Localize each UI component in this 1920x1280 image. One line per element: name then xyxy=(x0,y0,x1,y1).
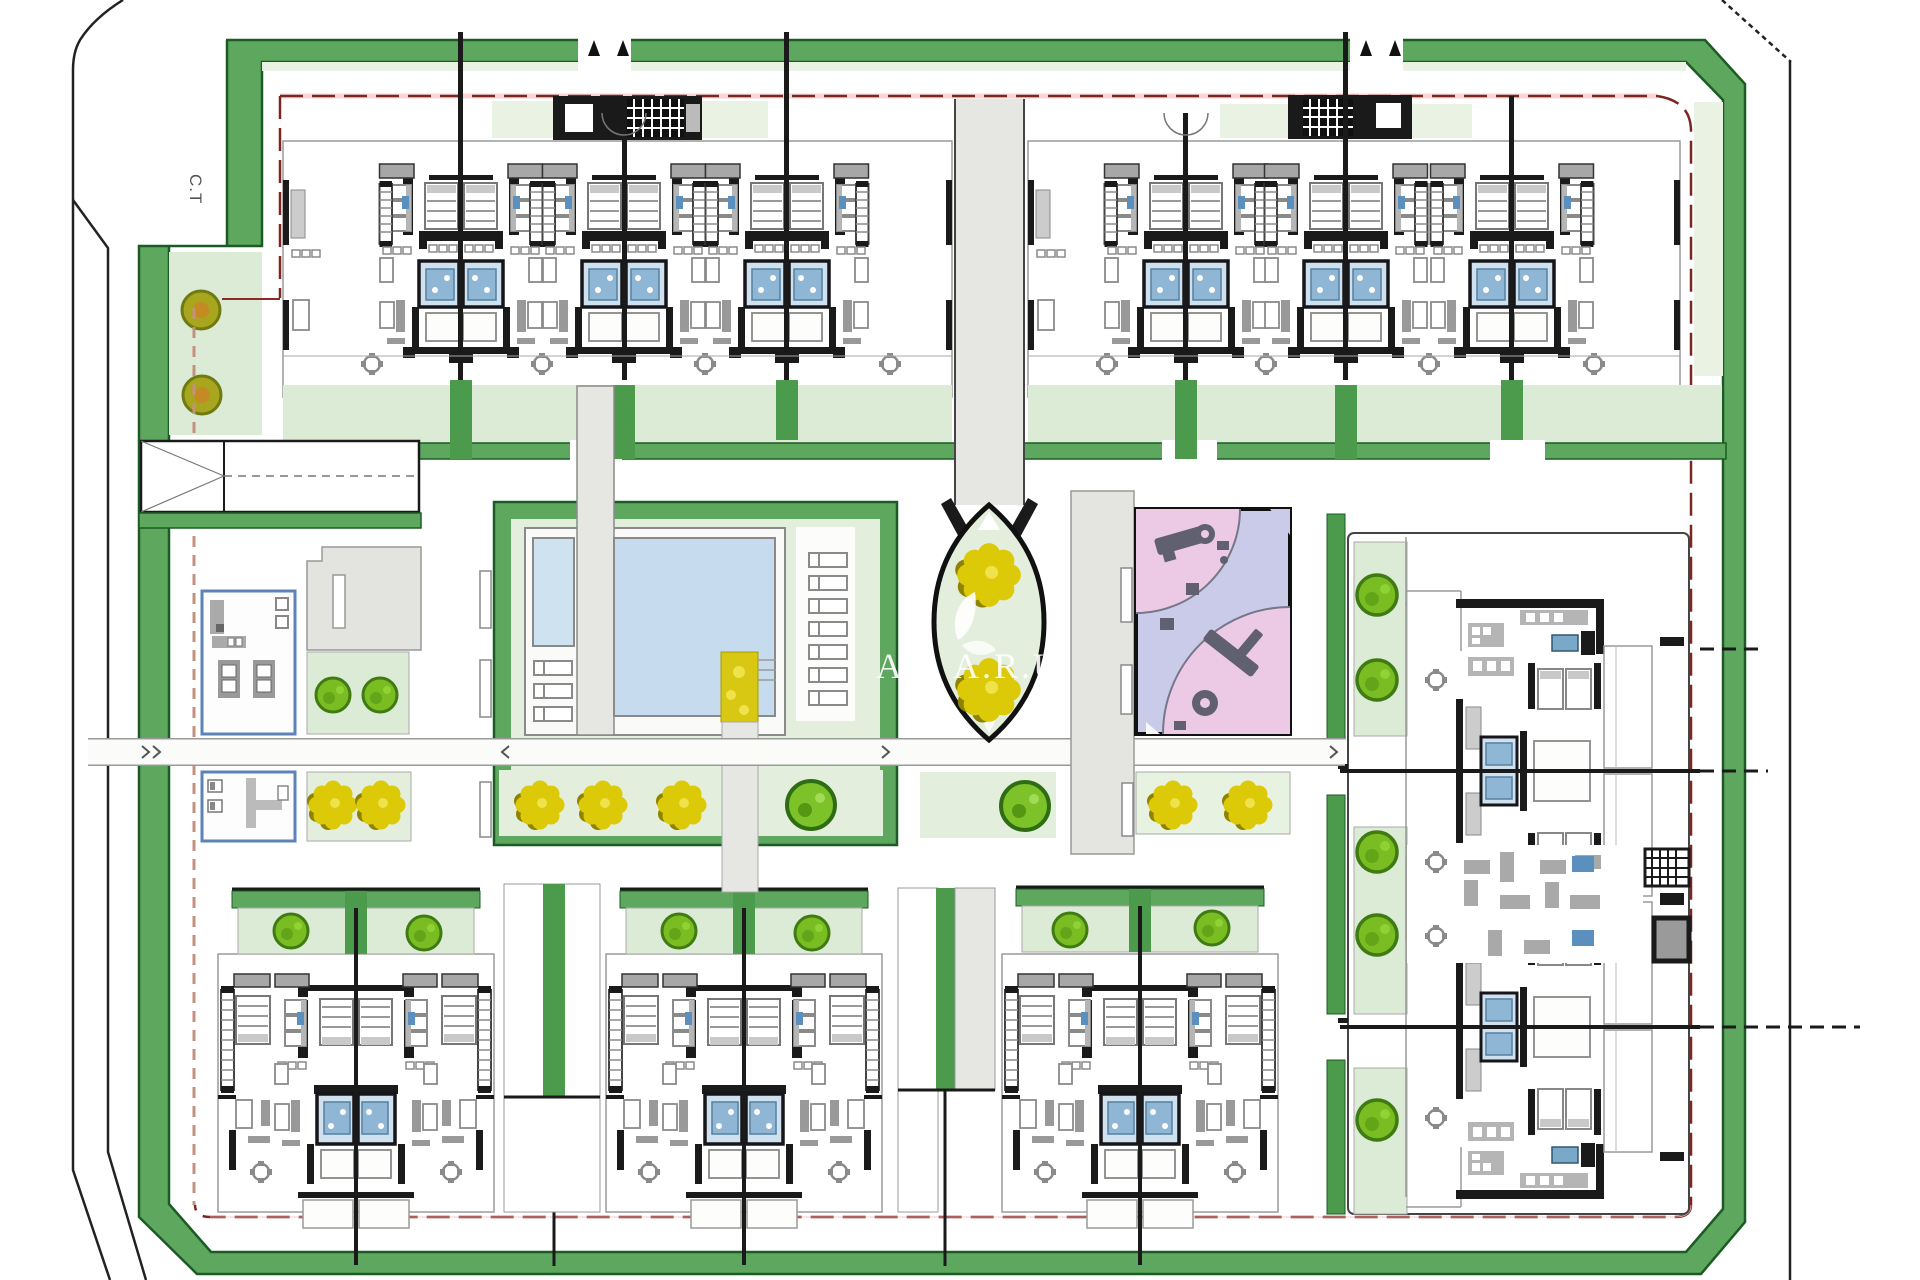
svg-text:A.R.U: A.R.U xyxy=(953,646,1062,686)
svg-text:A: A xyxy=(876,646,902,686)
svg-text:C.T: C.T xyxy=(186,174,205,204)
